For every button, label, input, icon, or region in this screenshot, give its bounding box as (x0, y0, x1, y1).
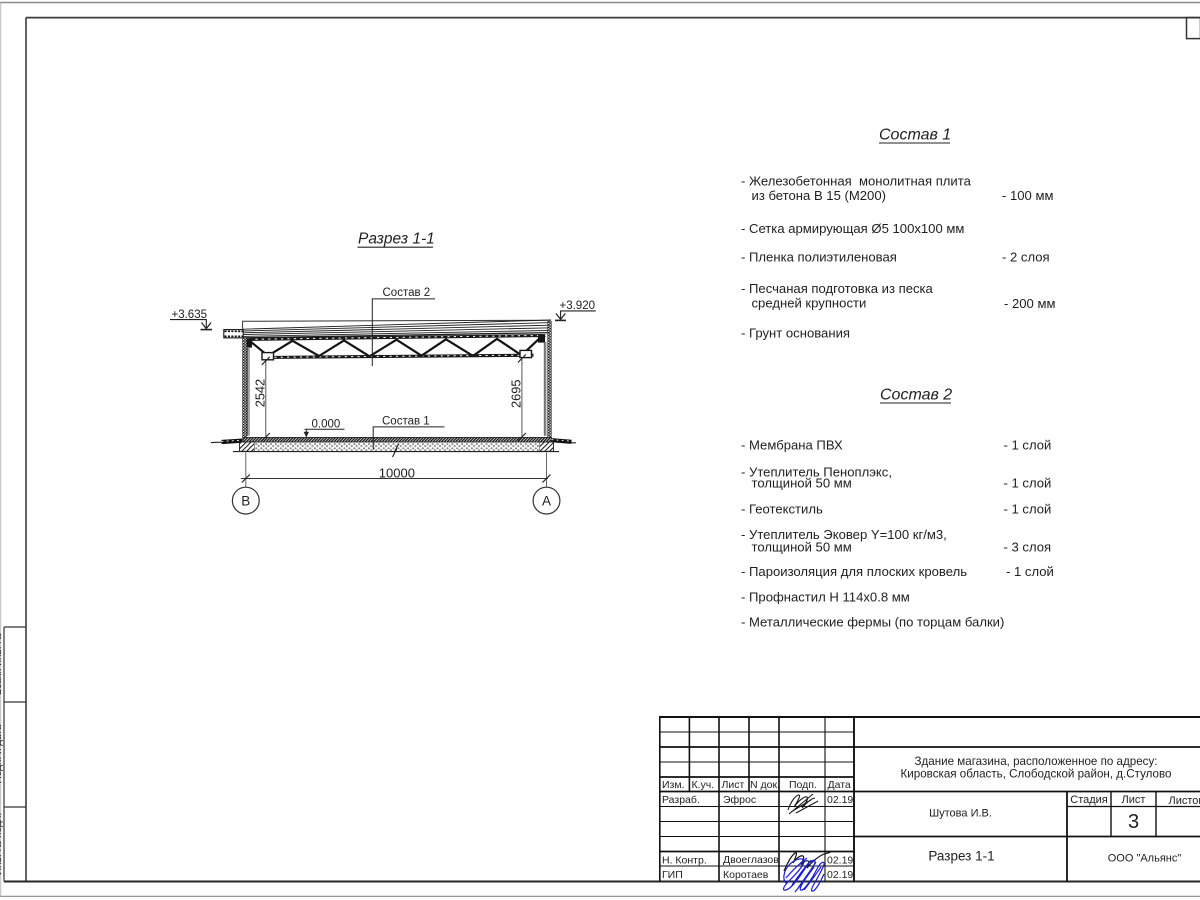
svg-text:Н. Контр.: Н. Контр. (662, 855, 707, 867)
svg-text:02.19: 02.19 (827, 869, 853, 881)
svg-text:Разраб.: Разраб. (662, 794, 700, 806)
svg-text:Взам. инв. №: Взам. инв. № (0, 633, 4, 695)
svg-text:- Металлические фермы (по торц: - Металлические фермы (по торцам балки) (741, 615, 1004, 630)
svg-text:- 2 слоя: - 2 слоя (1002, 250, 1050, 265)
svg-text:А: А (542, 494, 551, 509)
svg-text:- Грунт основания: - Грунт основания (741, 326, 850, 341)
svg-text:0.000: 0.000 (312, 418, 341, 430)
svg-text:Состав 2: Состав 2 (880, 386, 952, 403)
svg-text:Листов: Листов (1169, 795, 1200, 807)
svg-text:- Сетка армирующая Ø5 100х100: - Сетка армирующая Ø5 100х100 мм (741, 221, 964, 236)
svg-text:Стадия: Стадия (1070, 794, 1108, 806)
svg-text:- Геотекстиль: - Геотекстиль (741, 502, 823, 517)
svg-text:- 100 мм: - 100 мм (1002, 188, 1054, 203)
svg-text:Состав 2: Состав 2 (383, 287, 431, 299)
svg-text:К.уч.: К.уч. (692, 779, 715, 791)
svg-text:Состав 1: Состав 1 (879, 126, 951, 143)
svg-text:Подп. и дата: Подп. и дата (0, 724, 4, 783)
svg-text:- 3 слоя: - 3 слоя (1004, 540, 1052, 555)
svg-text:Здание магазина, расположенное: Здание магазина, расположенное по адресу… (915, 755, 1158, 768)
svg-text:3: 3 (1128, 811, 1139, 833)
svg-text:- 1 слой: - 1 слой (1004, 502, 1052, 517)
svg-text:Кировская область, Слободской: Кировская область, Слободской район, д.С… (901, 768, 1172, 781)
svg-text:Двоеглазов: Двоеглазов (723, 854, 779, 866)
svg-text:ГИП: ГИП (662, 869, 683, 881)
svg-text:- Пленка полиэтиленовая: - Пленка полиэтиленовая (741, 250, 897, 265)
svg-text:02.19: 02.19 (827, 794, 853, 806)
svg-text:02.19: 02.19 (827, 855, 853, 867)
svg-text:2542: 2542 (252, 379, 267, 407)
svg-text:толщиной 50 мм: толщиной 50 мм (752, 475, 852, 490)
svg-text:Дата: Дата (828, 779, 851, 791)
svg-text:- 200 мм: - 200 мм (1004, 296, 1056, 311)
svg-text:Изм.: Изм. (662, 779, 685, 791)
svg-text:средней крупности: средней крупности (752, 296, 867, 311)
svg-text:- Песчаная подготовка из песка: - Песчаная подготовка из песка (741, 281, 934, 296)
svg-text:10000: 10000 (379, 465, 415, 480)
svg-text:Подп.: Подп. (789, 779, 817, 791)
svg-text:толщиной 50 мм: толщиной 50 мм (752, 540, 852, 555)
svg-text:из бетона В 15 (М200): из бетона В 15 (М200) (752, 188, 887, 203)
svg-text:- Железобетонная монолитная п: - Железобетонная монолитная плита (741, 174, 972, 189)
svg-text:Эфрос: Эфрос (723, 794, 756, 806)
svg-text:Шутова И.В.: Шутова И.В. (929, 808, 992, 820)
svg-text:- 1 слой: - 1 слой (1006, 564, 1054, 579)
svg-text:Коротаев: Коротаев (723, 869, 769, 881)
svg-text:ООО "Альянс": ООО "Альянс" (1108, 853, 1182, 865)
svg-text:Разрез 1-1: Разрез 1-1 (358, 231, 435, 248)
svg-text:Лист: Лист (722, 779, 745, 791)
svg-text:Состав 1: Состав 1 (382, 415, 430, 427)
svg-text:- 1 слой: - 1 слой (1004, 475, 1052, 490)
svg-text:Инв. № подл.: Инв. № подл. (0, 813, 4, 875)
svg-text:- Мембрана ПВХ: - Мембрана ПВХ (741, 437, 843, 452)
svg-text:- 1 слой: - 1 слой (1004, 437, 1052, 452)
svg-text:Разрез 1-1: Разрез 1-1 (928, 849, 994, 864)
svg-text:N док.: N док. (750, 779, 780, 791)
svg-text:В: В (241, 494, 250, 509)
svg-text:+3.635: +3.635 (172, 309, 208, 321)
svg-text:- Пароизоляция для плоских кро: - Пароизоляция для плоских кровель (741, 564, 967, 579)
svg-text:2695: 2695 (508, 380, 523, 408)
svg-text:- Профнастил Н 114х0.8 мм: - Профнастил Н 114х0.8 мм (741, 590, 910, 605)
svg-text:Лист: Лист (1122, 794, 1146, 806)
